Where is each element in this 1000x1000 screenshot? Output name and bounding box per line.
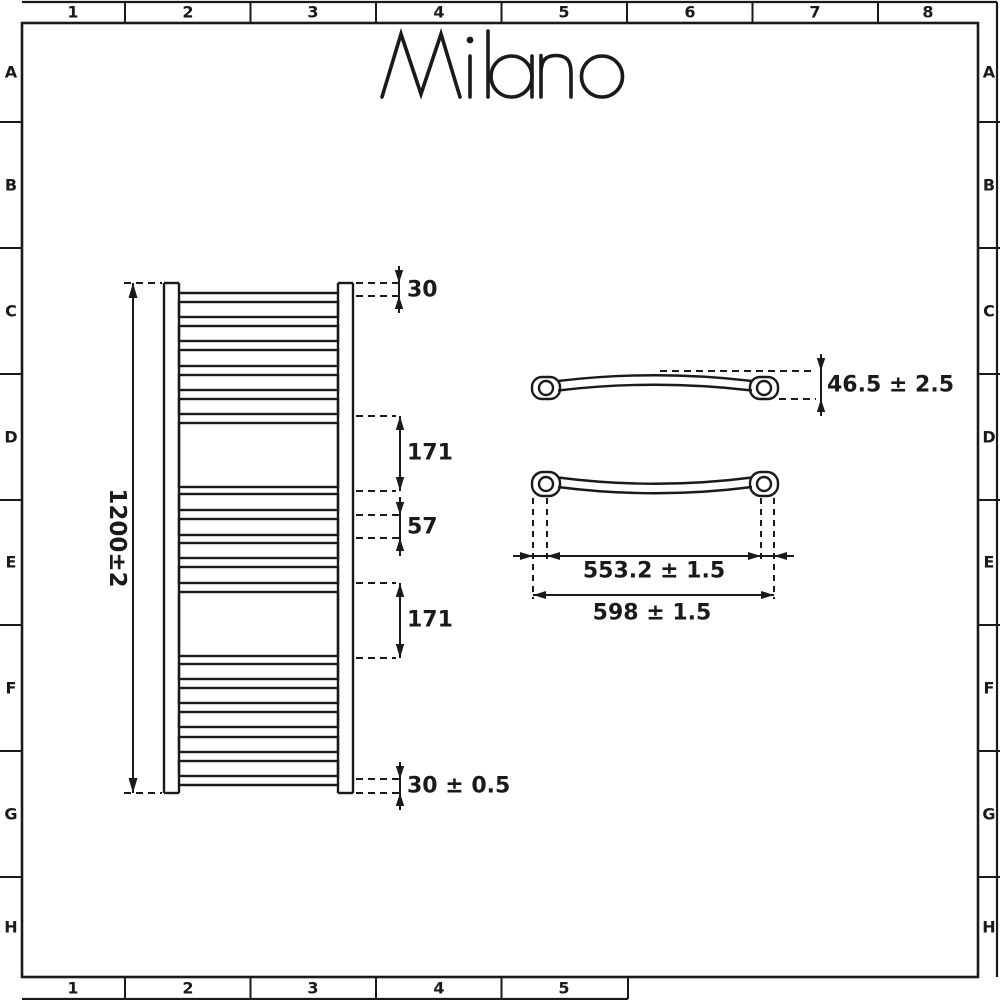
sheet-frame [0,2,1000,999]
grid-col-label-bottom-4: 4 [433,979,444,998]
grid-col-label-top-1: 1 [67,3,78,22]
grid-row-label-left-H: H [4,918,17,937]
grid-row-label-right-H: H [982,918,995,937]
grid-row-label-right-A: A [983,63,995,82]
left-collar2 [532,472,560,496]
dim-lower-panel: 171 [407,608,453,633]
grid-col-label-top-6: 6 [684,3,695,22]
upper-panel [179,423,338,487]
dim-upper-panel: 171 [407,441,453,466]
grid-col-label-top-8: 8 [922,3,933,22]
grid-col-label-bottom-2: 2 [182,979,193,998]
grid-row-label-right-G: G [982,805,995,824]
grid-col-label-bottom-3: 3 [307,979,318,998]
grid-row-label-left-C: C [5,302,17,321]
dim-overall-width: 598 ± 1.5 [593,601,712,626]
bottom-grid-ticks [125,977,628,999]
curved-bar2-bottom-edge [558,487,752,493]
main-border [22,23,978,977]
drawing-canvas [0,0,1000,1000]
logo-letter-a-bowl [491,56,532,97]
grid-row-label-right-E: E [984,553,995,572]
grid-col-label-top-5: 5 [558,3,569,22]
grid-row-label-left-A: A [5,63,17,82]
right-fixing-hole [757,381,771,395]
grid-row-label-left-G: G [4,805,17,824]
dim-rung-pitch: 57 [407,515,438,540]
grid-col-label-bottom-1: 1 [67,979,78,998]
curved-bar-top-edge [558,375,752,381]
grid-row-label-left-F: F [6,679,17,698]
radiator-front-view [164,283,353,793]
dim-fixing-centres: 553.2 ± 1.5 [583,559,725,584]
dim-overall-height: 1200±2 [104,488,130,587]
grid-row-label-left-B: B [5,176,17,195]
top-view-depth [532,375,778,399]
grid-row-label-right-F: F [984,679,995,698]
dim-bottom-offset: 30 ± 0.5 [407,774,510,799]
grid-row-label-left-D: D [4,428,17,447]
right-fixing-hole2 [757,477,771,491]
top-view-width [532,472,778,496]
logo-i-dot [467,37,474,44]
dim-depth: 46.5 ± 2.5 [827,373,954,398]
logo-letter-M [382,34,460,97]
width-dimensions [513,498,794,599]
grid-col-label-top-7: 7 [809,3,820,22]
curved-bar-bottom-edge [558,385,752,391]
top-grid-ticks [125,2,878,23]
grid-col-label-top-3: 3 [307,3,318,22]
left-fixing-hole2 [539,477,553,491]
grid-row-label-right-D: D [982,428,995,447]
lower-panel [179,592,338,656]
grid-row-label-right-B: B [983,176,995,195]
rungs [179,302,338,776]
left-fixing-hole [539,381,553,395]
grid-col-label-bottom-5: 5 [558,979,569,998]
grid-col-label-top-4: 4 [433,3,444,22]
left-grid-ticks [0,122,22,877]
grid-row-label-right-C: C [983,302,995,321]
right-collar2 [750,472,778,496]
grid-row-label-left-E: E [6,553,17,572]
drawing-sheet: Milano [0,0,1000,1000]
logo-letter-n [541,56,571,98]
grid-col-label-top-2: 2 [182,3,193,22]
logo-letter-o [582,56,623,97]
curved-bar2-top-edge [558,478,752,484]
dim-top-offset: 30 [407,278,438,303]
milano-logo [382,31,623,97]
front-dimensions [124,266,404,810]
